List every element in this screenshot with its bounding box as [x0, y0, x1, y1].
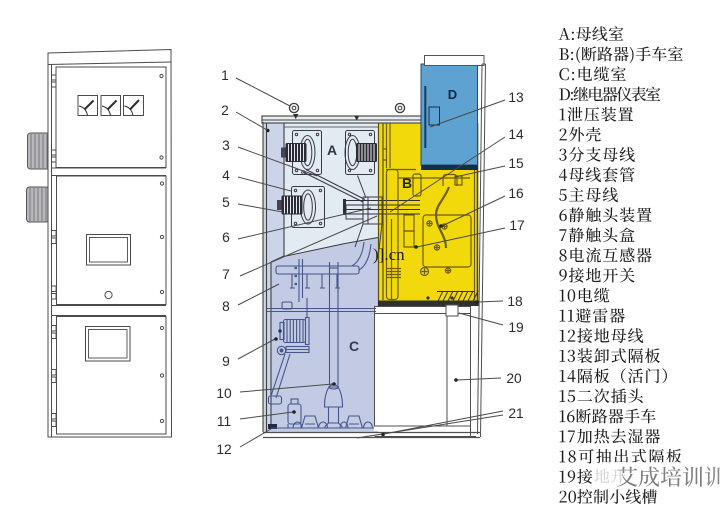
svg-text:9: 9 — [222, 354, 230, 369]
svg-text:3: 3 — [222, 138, 230, 153]
svg-text:15: 15 — [508, 156, 524, 171]
svg-text:14: 14 — [508, 127, 524, 142]
svg-text:7: 7 — [222, 267, 230, 282]
svg-text:12: 12 — [216, 442, 231, 457]
svg-text:17: 17 — [509, 218, 524, 233]
svg-text:6: 6 — [222, 230, 230, 245]
svg-text:21: 21 — [508, 406, 523, 421]
svg-text:B: B — [402, 175, 412, 191]
svg-text:8: 8 — [222, 299, 230, 314]
svg-text:)].cn: )].cn — [373, 245, 405, 264]
svg-text:2: 2 — [221, 103, 229, 118]
svg-text:13: 13 — [508, 90, 524, 105]
svg-text:D: D — [448, 87, 457, 102]
svg-text:10: 10 — [216, 386, 232, 401]
svg-text:A: A — [327, 142, 337, 158]
svg-text:1: 1 — [221, 68, 229, 83]
svg-text:18: 18 — [507, 294, 523, 309]
svg-text:C: C — [349, 338, 359, 354]
svg-text:16: 16 — [508, 186, 524, 201]
svg-text:4: 4 — [222, 168, 230, 183]
svg-text:19: 19 — [508, 320, 524, 335]
svg-text:11: 11 — [217, 414, 231, 429]
svg-text:20: 20 — [506, 371, 522, 386]
svg-text:5: 5 — [222, 195, 230, 210]
